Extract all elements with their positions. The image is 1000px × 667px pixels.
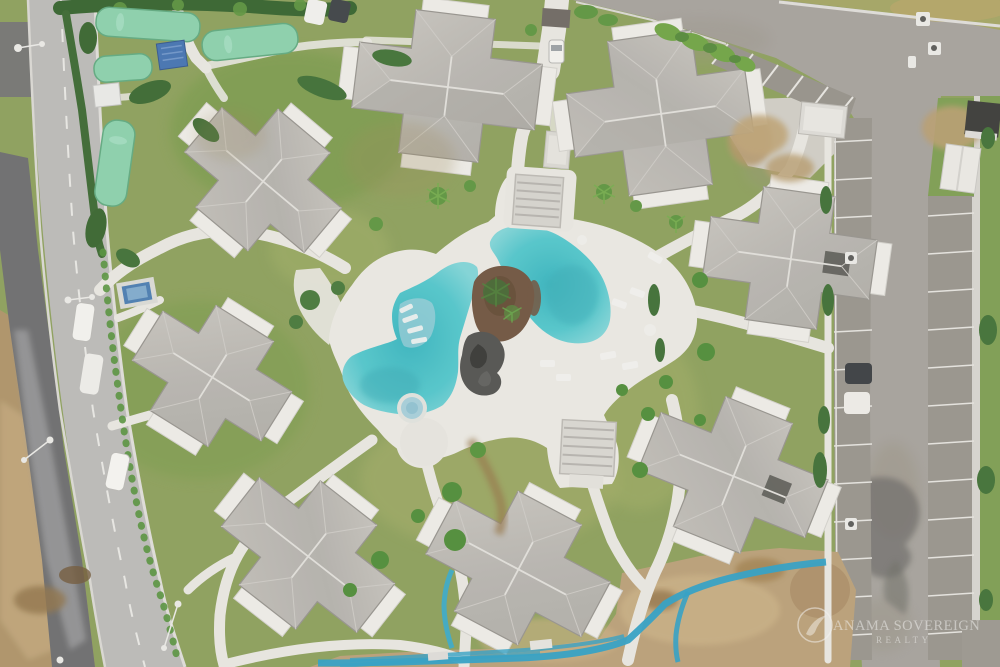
svg-text:ANAMA SOVEREIGN: ANAMA SOVEREIGN [833,618,980,634]
svg-text:REALTY: REALTY [876,635,932,645]
